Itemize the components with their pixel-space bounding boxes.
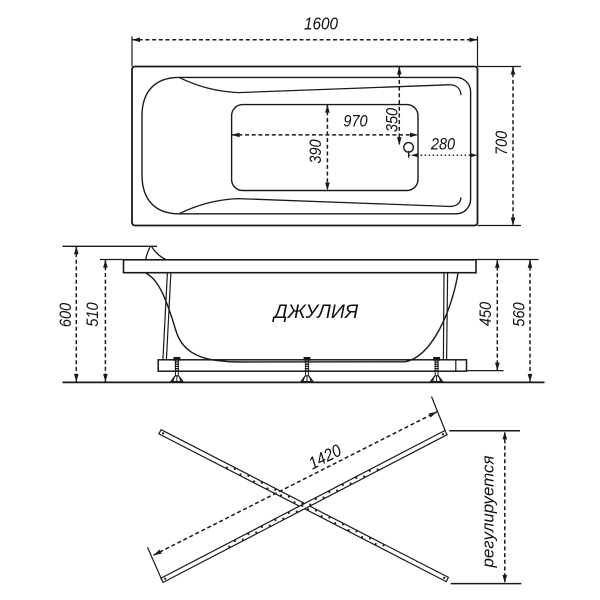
svg-text:ДЖУЛИЯ: ДЖУЛИЯ [272, 301, 359, 323]
svg-text:1600: 1600 [304, 14, 338, 34]
svg-text:600: 600 [56, 302, 75, 327]
svg-text:280: 280 [430, 135, 456, 154]
svg-text:регулируется: регулируется [479, 456, 498, 569]
svg-text:510: 510 [83, 302, 102, 327]
svg-text:390: 390 [306, 139, 325, 164]
svg-text:350: 350 [383, 107, 402, 132]
svg-text:560: 560 [510, 302, 529, 327]
svg-text:700: 700 [492, 130, 511, 155]
svg-text:450: 450 [476, 301, 495, 326]
svg-text:970: 970 [343, 112, 368, 131]
